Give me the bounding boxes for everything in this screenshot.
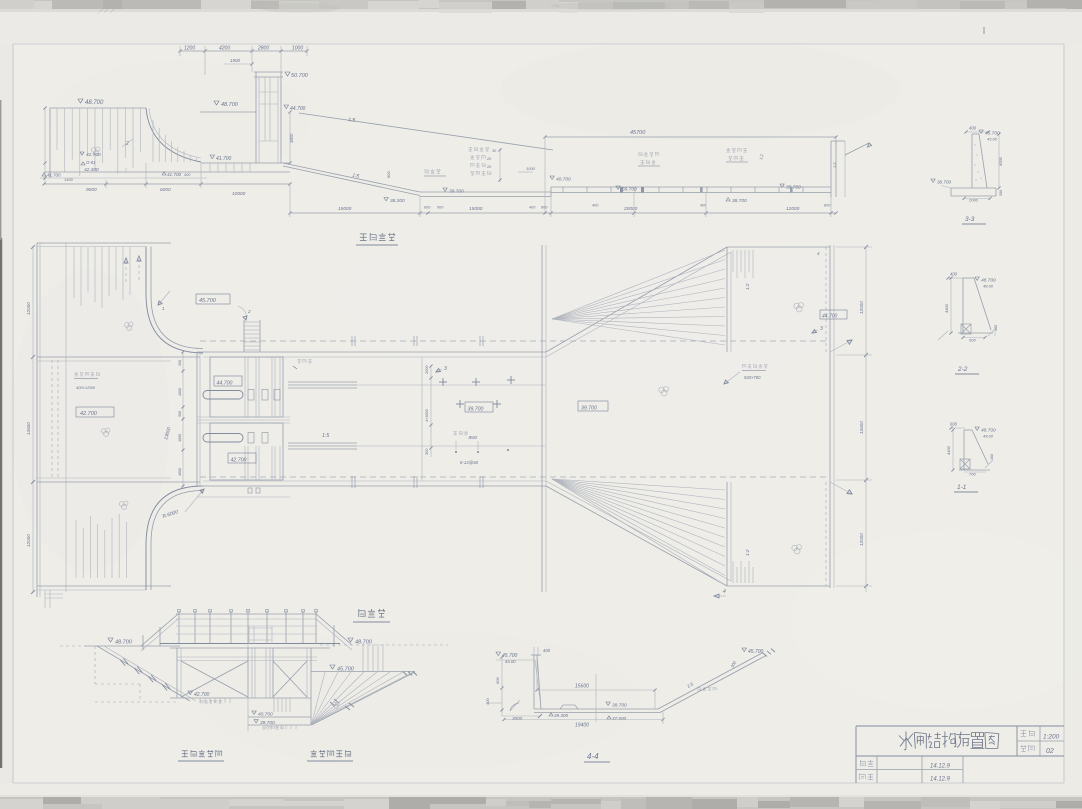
svg-text:45.700: 45.700 [748,649,764,655]
svg-text:02: 02 [1046,748,1054,755]
svg-text:4000: 4000 [178,388,182,396]
svg-text:1:2: 1:2 [745,283,750,290]
svg-text:37.500: 37.500 [612,716,626,721]
svg-text:4600: 4600 [178,468,182,476]
svg-text:48.700: 48.700 [115,640,133,646]
svg-text:45700: 45700 [630,130,646,136]
svg-text:48.60: 48.60 [983,434,994,439]
svg-text:12000: 12000 [859,301,864,314]
svg-text:600: 600 [437,206,444,210]
svg-text:44.700: 44.700 [217,381,233,387]
svg-text:39.300: 39.300 [554,713,568,718]
svg-text:14.12.9: 14.12.9 [930,764,951,770]
svg-text:10000: 10000 [232,191,246,197]
svg-text:400: 400 [184,173,191,177]
svg-text:300: 300 [425,448,429,455]
svg-text:400: 400 [543,648,551,653]
svg-text:4400: 4400 [946,445,951,455]
svg-text:3000: 3000 [512,716,523,721]
svg-text:300: 300 [178,360,182,366]
svg-text:3: 3 [444,366,447,372]
svg-text:800: 800 [824,204,831,208]
svg-text:500: 500 [969,338,976,343]
svg-text:1200: 1200 [184,46,195,52]
svg-text:15000: 15000 [338,206,352,212]
svg-text:42.300: 42.300 [84,167,99,173]
svg-text:15000: 15000 [469,206,483,212]
svg-text:1:5: 1:5 [322,433,329,439]
svg-text:1400: 1400 [64,177,74,182]
svg-text:1000: 1000 [292,46,303,52]
svg-text:42.700: 42.700 [80,411,98,417]
svg-text:20: 20 [486,157,492,161]
svg-text:600: 600 [424,206,431,210]
svg-text:44.700: 44.700 [822,314,838,320]
svg-text:4400: 4400 [944,303,949,313]
svg-text:O·81: O·81 [86,160,95,165]
svg-text:400: 400 [485,698,490,705]
svg-text:38.300: 38.300 [390,198,405,204]
svg-text:39.700: 39.700 [581,406,597,412]
svg-text:48.60: 48.60 [983,284,994,289]
svg-text:44.700: 44.700 [290,106,306,112]
svg-text:1:2: 1:2 [745,549,750,556]
svg-text:800: 800 [541,206,548,210]
svg-text:39.700: 39.700 [786,185,801,191]
svg-text:38.700: 38.700 [937,180,951,185]
svg-text:45.700: 45.700 [199,298,217,304]
svg-text:1-1: 1-1 [957,484,967,491]
svg-text:1000: 1000 [526,166,536,171]
svg-text:42.700: 42.700 [231,458,247,464]
svg-text:45.60: 45.60 [987,137,998,142]
svg-text:12000: 12000 [26,302,31,315]
svg-text:920×700: 920×700 [744,375,761,380]
svg-text:38.700: 38.700 [612,703,627,709]
svg-text:600: 600 [495,677,500,684]
svg-text:1:5: 1:5 [348,117,356,124]
svg-text:20000: 20000 [623,206,638,212]
svg-text:48.700: 48.700 [221,102,239,108]
svg-text:400×1/000: 400×1/000 [76,385,96,390]
svg-text:6000: 6000 [998,156,1003,166]
svg-text:1900: 1900 [230,58,241,63]
svg-text:20: 20 [486,165,492,169]
svg-text:500: 500 [178,411,182,417]
svg-text:400: 400 [529,206,536,210]
svg-text:12000: 12000 [859,533,864,546]
svg-text:2000: 2000 [425,365,429,375]
svg-text:6·12@60: 6·12@60 [460,460,479,465]
svg-text:2: 2 [125,141,129,147]
svg-text:45.700: 45.700 [337,667,355,673]
svg-text:400: 400 [990,454,994,460]
svg-text:800: 800 [386,171,391,178]
svg-text:4: 4 [723,589,726,595]
svg-text:12000: 12000 [786,206,800,212]
svg-text:42.700: 42.700 [194,692,210,698]
svg-text:50.700: 50.700 [291,73,309,79]
svg-text:2: 2 [247,309,251,314]
svg-text:13600: 13600 [26,422,31,435]
svg-text:3800: 3800 [289,133,294,143]
svg-text:48.700: 48.700 [85,100,104,106]
svg-text:2800: 2800 [257,46,269,52]
svg-text:41.700: 41.700 [216,156,232,162]
svg-text:40.700: 40.700 [258,712,273,718]
svg-text:400: 400 [969,126,977,131]
svg-text:4×3000: 4×3000 [425,408,429,422]
svg-text:48.700: 48.700 [355,640,373,646]
svg-text:39.700: 39.700 [260,720,275,726]
svg-text:14.12.9: 14.12.9 [930,777,951,783]
svg-text:4000: 4000 [178,434,182,442]
svg-text:600: 600 [950,422,958,427]
svg-text:2-2: 2-2 [957,366,968,373]
svg-text:42.700: 42.700 [86,152,101,158]
svg-text:1:2: 1:2 [832,162,837,168]
svg-text:39.700: 39.700 [468,407,484,413]
svg-text:3-3: 3-3 [965,216,975,223]
svg-text:40.700: 40.700 [556,177,571,183]
svg-text:19400: 19400 [575,723,589,729]
svg-text:39.700: 39.700 [449,189,464,195]
svg-text:500: 500 [999,190,1003,196]
svg-text:38.700: 38.700 [732,198,747,204]
svg-text:9000: 9000 [86,187,97,193]
svg-text:12000: 12000 [26,534,31,547]
svg-text:3: 3 [820,326,823,332]
svg-text:400: 400 [592,204,599,208]
svg-text:4-4: 4-4 [587,752,599,761]
svg-text:400: 400 [950,272,958,277]
svg-text:41.700: 41.700 [167,172,181,177]
svg-text:1:200: 1:200 [1043,734,1060,741]
svg-text:4200: 4200 [219,46,230,52]
svg-text:41.700: 41.700 [47,173,61,178]
svg-text:Æ60: Æ60 [467,435,478,440]
svg-text:13600: 13600 [859,421,864,434]
svg-text:6000: 6000 [160,187,171,193]
svg-text:4: 4 [817,251,820,256]
svg-text:15600: 15600 [575,684,589,690]
